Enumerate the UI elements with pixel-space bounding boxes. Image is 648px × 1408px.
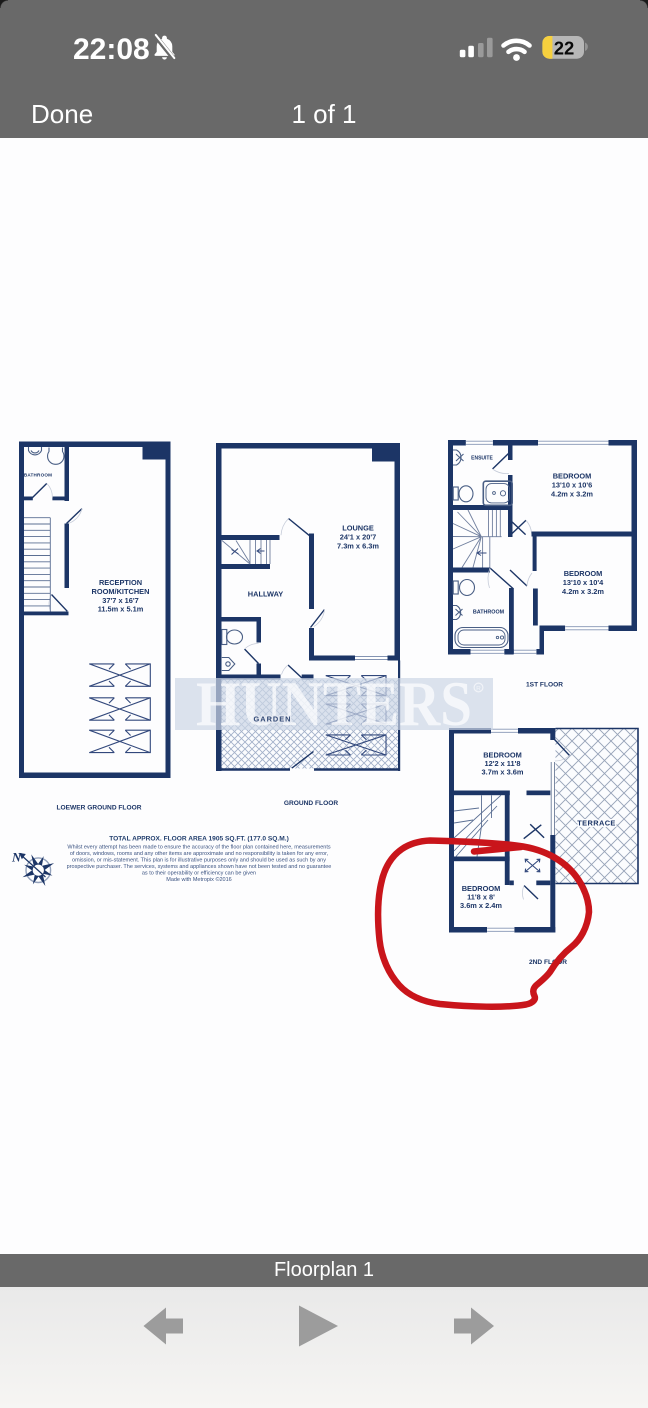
- svg-text:prospective purchaser. The ser: prospective purchaser. The services, sys…: [67, 864, 332, 870]
- svg-text:GARDEN: GARDEN: [253, 715, 291, 724]
- svg-text:BEDROOM: BEDROOM: [553, 472, 592, 481]
- svg-text:as to their operability or eff: as to their operability or efficiency ca…: [142, 871, 256, 877]
- svg-text:TERRACE: TERRACE: [577, 819, 616, 828]
- svg-text:4.2m x 3.2m: 4.2m x 3.2m: [562, 587, 604, 596]
- svg-text:R: R: [476, 685, 481, 692]
- svg-text:Whilst every attempt has been: Whilst every attempt has been made to en…: [67, 845, 330, 851]
- svg-text:BEDROOM: BEDROOM: [564, 569, 603, 578]
- svg-text:TOTAL APPROX. FLOOR AREA 1905: TOTAL APPROX. FLOOR AREA 1905 SQ.FT. (17…: [109, 836, 289, 843]
- svg-text:7.3m x 6.3m: 7.3m x 6.3m: [337, 542, 379, 551]
- svg-text:RECEPTION: RECEPTION: [99, 578, 142, 587]
- svg-text:3.6m x 2.4m: 3.6m x 2.4m: [460, 901, 502, 910]
- svg-text:omission, or mis-statement. Th: omission, or mis-statement. This plan is…: [72, 858, 326, 864]
- svg-text:13'10 x 10'6: 13'10 x 10'6: [552, 481, 593, 490]
- svg-text:HALLWAY: HALLWAY: [248, 590, 284, 599]
- svg-text:ROOM/KITCHEN: ROOM/KITCHEN: [92, 587, 150, 596]
- svg-text:ENSUITE: ENSUITE: [471, 456, 493, 462]
- svg-text:3.7m x 3.6m: 3.7m x 3.6m: [482, 768, 524, 777]
- svg-text:11.5m x 5.1m: 11.5m x 5.1m: [98, 605, 144, 614]
- svg-text:1ST FLOOR: 1ST FLOOR: [526, 682, 563, 689]
- svg-text:LOEWER GROUND FLOOR: LOEWER GROUND FLOOR: [57, 805, 142, 812]
- svg-text:BATHROOM: BATHROOM: [473, 610, 505, 616]
- svg-text:4.2m x 3.2m: 4.2m x 3.2m: [551, 490, 593, 499]
- svg-text:of doors, windows, rooms and a: of doors, windows, rooms and any other i…: [70, 851, 329, 857]
- svg-text:24'1 x 20'7: 24'1 x 20'7: [340, 533, 376, 542]
- svg-text:Made with Metropix ©2016: Made with Metropix ©2016: [166, 876, 232, 883]
- svg-text:GROUND FLOOR: GROUND FLOOR: [284, 800, 338, 807]
- svg-text:22: 22: [554, 38, 575, 59]
- svg-text:N: N: [11, 851, 22, 865]
- svg-text:HUNTERS: HUNTERS: [196, 668, 472, 739]
- svg-text:LOUNGE: LOUNGE: [342, 524, 374, 533]
- svg-text:BATHROOM: BATHROOM: [24, 473, 52, 478]
- svg-text:13'10 x 10'4: 13'10 x 10'4: [563, 578, 604, 587]
